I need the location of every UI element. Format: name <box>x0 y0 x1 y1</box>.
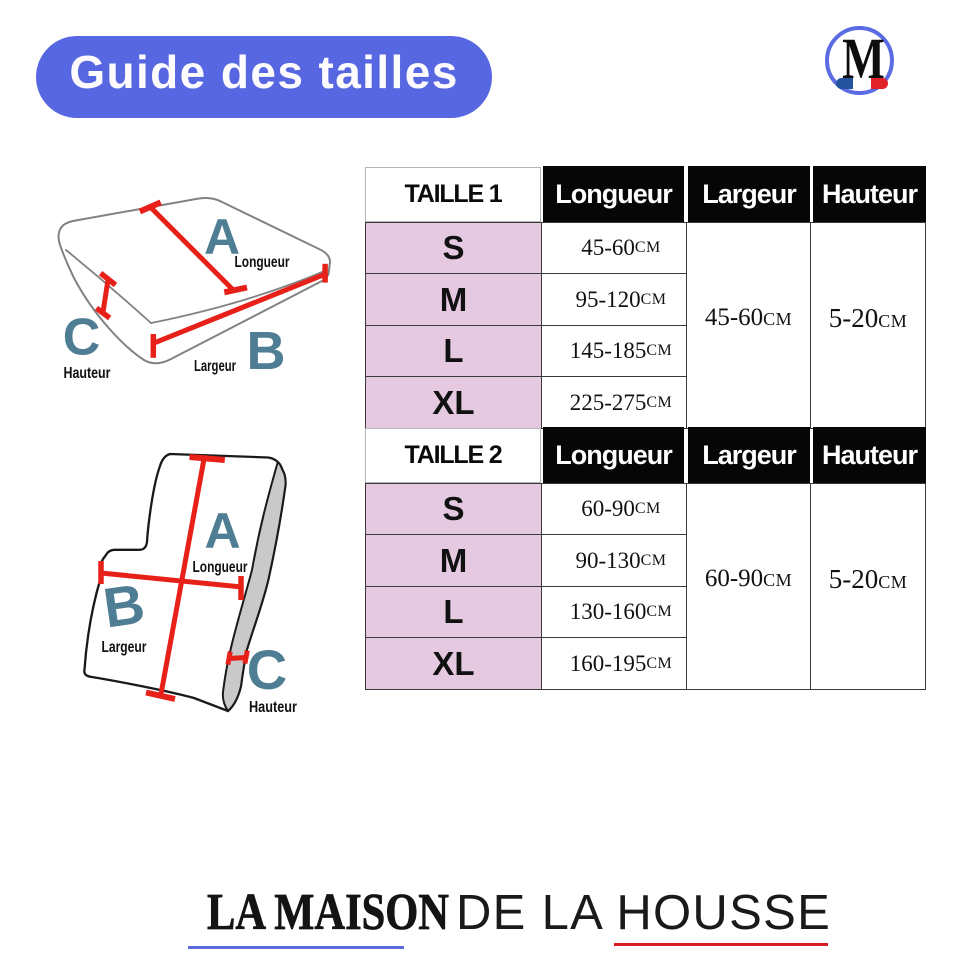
svg-text:C: C <box>247 638 287 701</box>
svg-text:Longueur: Longueur <box>193 559 248 576</box>
svg-text:C: C <box>63 309 101 367</box>
svg-text:Largeur: Largeur <box>102 639 147 656</box>
svg-text:Longueur: Longueur <box>235 254 290 271</box>
svg-text:B: B <box>247 321 286 381</box>
svg-text:Hauteur: Hauteur <box>64 365 111 382</box>
svg-text:A: A <box>204 503 240 559</box>
svg-text:Largeur: Largeur <box>194 358 236 375</box>
svg-text:Hauteur: Hauteur <box>249 699 297 716</box>
